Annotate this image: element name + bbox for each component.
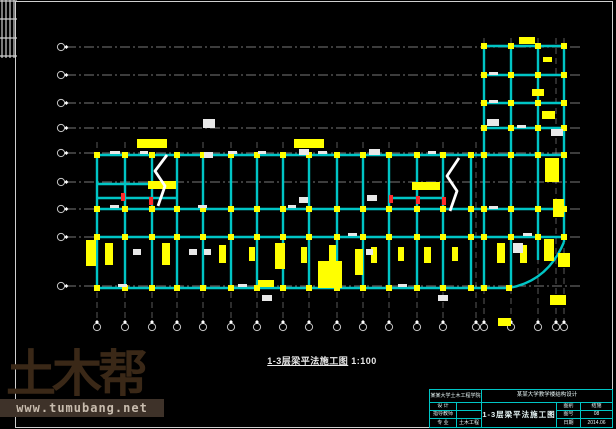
column-marker [535, 72, 541, 78]
column-marker [94, 234, 100, 240]
axis-tick-diamond [64, 101, 68, 105]
column-marker [481, 206, 487, 212]
axis-bubble-bottom [253, 323, 260, 330]
title-block-value-date: 2014.06 [580, 418, 613, 428]
axis-bubble-bottom [199, 323, 206, 330]
red-mark [389, 195, 393, 203]
axis-tick-diamond [64, 126, 68, 130]
column-marker [468, 206, 474, 212]
column-marker [280, 234, 286, 240]
column-marker [561, 100, 567, 106]
column-marker [414, 206, 420, 212]
column-marker [481, 125, 487, 131]
column-marker [94, 152, 100, 158]
text-annotation [366, 249, 373, 255]
rebar-annotation [137, 139, 167, 148]
column-marker [149, 152, 155, 158]
red-mark [442, 197, 446, 205]
column-marker [508, 152, 514, 158]
text-annotation [204, 249, 211, 255]
text-annotation [299, 149, 309, 155]
rebar-annotation [519, 37, 535, 44]
column-marker [334, 206, 340, 212]
rebar-annotation [545, 158, 559, 182]
axis-bubble-bottom [560, 323, 567, 330]
title-block-institute: 某某大学土木工程学院 [429, 389, 482, 403]
column-marker [508, 43, 514, 49]
rebar-annotation [294, 139, 324, 148]
text-annotation [238, 284, 247, 287]
text-annotation [110, 151, 120, 154]
column-marker [280, 152, 286, 158]
rebar-annotation [558, 253, 570, 267]
axis-bubble-left [57, 71, 64, 78]
axis-bubble-bottom [227, 323, 234, 330]
rebar-annotation [452, 247, 458, 261]
column-marker [386, 206, 392, 212]
column-marker [360, 206, 366, 212]
axis-bubble-bottom [333, 323, 340, 330]
column-marker [174, 152, 180, 158]
column-marker [506, 285, 512, 291]
column-marker [414, 285, 420, 291]
axis-bubble-bottom [439, 323, 446, 330]
stair-break-line [447, 158, 459, 211]
column-marker [440, 285, 446, 291]
axis-tick-diamond [64, 151, 68, 155]
column-marker [386, 152, 392, 158]
watermark-url-strip: www.tumubang.net [0, 399, 164, 417]
text-annotation [198, 205, 207, 208]
column-marker [535, 152, 541, 158]
text-annotation [369, 149, 380, 155]
column-marker [508, 206, 514, 212]
rebar-annotation [329, 245, 336, 263]
text-annotation [551, 129, 563, 136]
text-annotation [228, 151, 237, 154]
column-marker [386, 234, 392, 240]
rebar-annotation [355, 249, 363, 275]
rebar-annotation [318, 261, 342, 288]
column-marker [334, 234, 340, 240]
rebar-annotation [498, 318, 511, 326]
column-marker [122, 206, 128, 212]
watermark-url: www.tumubang.net [16, 401, 148, 415]
axis-tick-diamond [64, 45, 68, 49]
column-marker [414, 152, 420, 158]
column-marker [334, 152, 340, 158]
column-marker [561, 43, 567, 49]
axis-bubble-left [57, 124, 64, 131]
rebar-annotation [412, 182, 440, 190]
text-annotation [118, 284, 127, 287]
text-annotation [428, 151, 436, 154]
column-marker [228, 285, 234, 291]
column-marker [228, 234, 234, 240]
column-marker [174, 285, 180, 291]
column-marker [360, 234, 366, 240]
column-marker [174, 206, 180, 212]
title-block: 某某大学土木工程学院 某某大学教学楼结构设计 设 计 指导教师 专 业 土木工程… [429, 389, 613, 428]
title-block-label-major: 专 业 [429, 418, 457, 428]
text-annotation [288, 205, 296, 208]
rebar-annotation [532, 89, 544, 96]
axis-bubble-bottom [385, 323, 392, 330]
column-marker [149, 285, 155, 291]
column-marker [228, 206, 234, 212]
rebar-annotation [542, 111, 555, 119]
axis-bubble-bottom [121, 323, 128, 330]
axis-bubble-left [57, 178, 64, 185]
axis-tick-diamond [64, 180, 68, 184]
column-marker [254, 234, 260, 240]
red-mark [121, 193, 125, 201]
rebar-annotation [105, 243, 113, 265]
rebar-annotation [497, 243, 505, 263]
axis-bubble-left [57, 282, 64, 289]
column-marker [360, 285, 366, 291]
axis-bubble-bottom [534, 323, 541, 330]
rebar-annotation [249, 247, 255, 261]
text-annotation [438, 295, 448, 301]
column-marker [306, 206, 312, 212]
column-marker [200, 234, 206, 240]
title-block-drawing-title: 1-3层梁平法施工图 [481, 402, 557, 428]
column-marker [200, 285, 206, 291]
column-marker [535, 206, 541, 212]
rebar-annotation [550, 295, 566, 305]
column-marker [481, 234, 487, 240]
text-annotation [258, 151, 266, 154]
axis-bubble-bottom [480, 323, 487, 330]
caption-scale: 1:100 [351, 356, 377, 366]
axis-tick-diamond [64, 284, 68, 288]
title-block-project: 某某大学教学楼结构设计 [481, 389, 613, 403]
column-marker [468, 285, 474, 291]
column-marker [254, 206, 260, 212]
column-marker [280, 206, 286, 212]
column-marker [386, 285, 392, 291]
axis-tick-diamond [64, 73, 68, 77]
rebar-annotation [301, 247, 307, 263]
text-annotation [133, 249, 141, 255]
text-annotation [398, 284, 407, 287]
text-annotation [489, 100, 498, 103]
rebar-annotation [275, 243, 285, 269]
column-marker [440, 152, 446, 158]
axis-bubble-left [57, 99, 64, 106]
axis-tick-diamond [64, 235, 68, 239]
rebar-annotation [86, 240, 96, 266]
axis-bubble-bottom [173, 323, 180, 330]
column-marker [306, 234, 312, 240]
column-marker [94, 206, 100, 212]
text-annotation [299, 197, 308, 203]
title-block-label-date: 日期 [556, 418, 581, 428]
axis-bubble-left [57, 43, 64, 50]
column-marker [414, 234, 420, 240]
text-annotation [489, 72, 498, 75]
red-mark [149, 197, 153, 205]
axis-bubble-bottom [93, 323, 100, 330]
column-marker [306, 285, 312, 291]
cad-sheet: 1-3层梁平法施工图 1:100 某某大学土木工程学院 某某大学教学楼结构设计 … [0, 0, 616, 429]
column-marker [561, 234, 567, 240]
axis-bubble-bottom [279, 323, 286, 330]
column-marker [174, 234, 180, 240]
axis-bubble-left [57, 205, 64, 212]
column-marker [481, 285, 487, 291]
text-annotation [348, 233, 357, 236]
watermark-logo: 土木帮 [6, 346, 166, 402]
axis-bubble-left [57, 149, 64, 156]
column-marker [481, 72, 487, 78]
rebar-annotation [258, 280, 274, 287]
column-marker [508, 234, 514, 240]
text-annotation [140, 151, 148, 154]
column-marker [94, 285, 100, 291]
axis-bubble-left [57, 233, 64, 240]
column-marker [280, 285, 286, 291]
column-marker [508, 125, 514, 131]
drawing-caption: 1-3层梁平法施工图 1:100 [222, 354, 422, 367]
column-marker [481, 43, 487, 49]
rebar-annotation [162, 243, 170, 265]
rebar-annotation [543, 57, 552, 62]
text-annotation [189, 249, 197, 255]
title-block-value-major: 土木工程 [456, 418, 482, 428]
column-marker [481, 100, 487, 106]
text-annotation [487, 119, 499, 126]
column-marker [440, 206, 446, 212]
column-marker [468, 152, 474, 158]
axis-bubble-bottom [472, 323, 479, 330]
axis-bubble-bottom [148, 323, 155, 330]
rebar-annotation [553, 199, 564, 217]
column-marker [440, 234, 446, 240]
column-marker [508, 72, 514, 78]
column-marker [149, 206, 155, 212]
column-marker [122, 152, 128, 158]
column-marker [468, 234, 474, 240]
red-mark [416, 196, 420, 204]
text-annotation [513, 243, 523, 253]
text-annotation [110, 205, 119, 208]
column-marker [535, 100, 541, 106]
column-marker [508, 100, 514, 106]
axis-bubble-bottom [413, 323, 420, 330]
column-marker [535, 234, 541, 240]
text-annotation [489, 206, 498, 209]
axis-bubble-bottom [305, 323, 312, 330]
column-marker [535, 43, 541, 49]
rebar-annotation [544, 239, 554, 261]
axis-tick-diamond [64, 207, 68, 211]
text-annotation [318, 151, 327, 154]
column-marker [360, 152, 366, 158]
axis-bubble-bottom [359, 323, 366, 330]
text-annotation [262, 295, 272, 301]
column-marker [122, 234, 128, 240]
rebar-annotation [219, 245, 226, 263]
text-annotation [367, 195, 377, 201]
text-annotation [523, 233, 532, 236]
column-marker [481, 152, 487, 158]
column-marker [561, 72, 567, 78]
column-marker [535, 125, 541, 131]
column-marker [561, 152, 567, 158]
axis-bubble-bottom [552, 323, 559, 330]
text-annotation [517, 125, 526, 128]
text-annotation [204, 152, 213, 158]
rebar-annotation [424, 247, 431, 263]
caption-title: 1-3层梁平法施工图 [267, 356, 348, 366]
text-annotation [203, 119, 215, 128]
column-marker [149, 234, 155, 240]
rebar-annotation [398, 247, 404, 261]
